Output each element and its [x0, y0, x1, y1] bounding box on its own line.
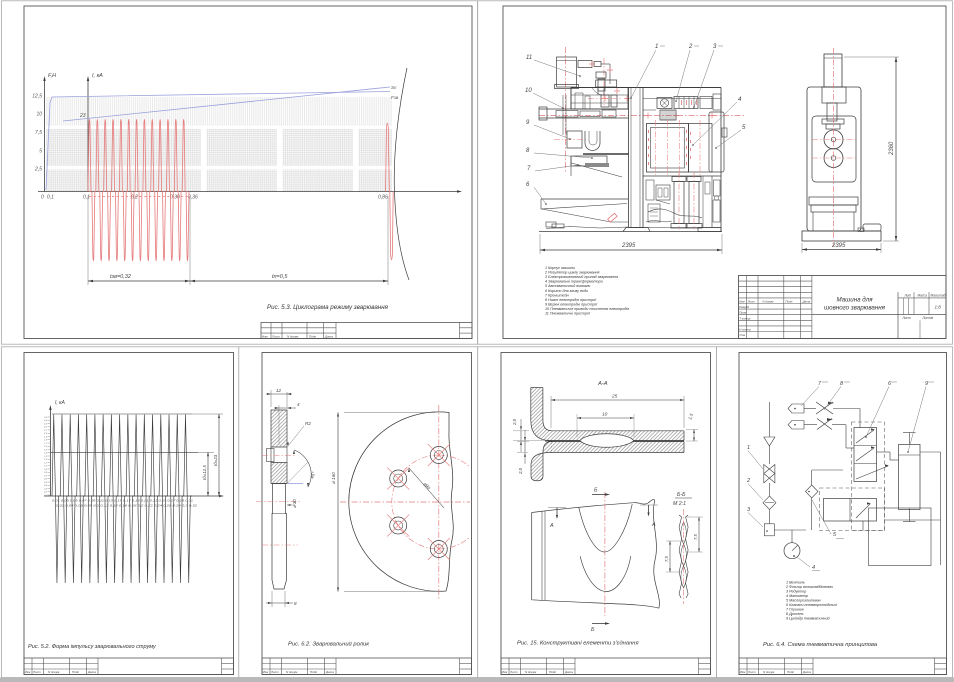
- svg-text:2 Фільтр вологовідділювач: 2 Фільтр вологовідділювач: [785, 585, 833, 589]
- svg-text:Iд=23: Iд=23: [213, 454, 218, 466]
- svg-text:0: 0: [41, 195, 44, 201]
- svg-text:Fзв: Fзв: [391, 95, 399, 100]
- svg-text:I, кА: I, кА: [92, 73, 103, 79]
- svg-text:R2: R2: [305, 421, 311, 426]
- svg-text:Лит: Лит: [904, 294, 912, 298]
- svg-text:tзв=0,32: tзв=0,32: [110, 274, 131, 280]
- svg-text:А-А: А-А: [597, 381, 608, 387]
- svg-text:1 Вентиль: 1 Вентиль: [786, 581, 805, 585]
- svg-text:tп=0,5: tп=0,5: [272, 274, 288, 280]
- svg-text:⌀ 160: ⌀ 160: [331, 472, 336, 484]
- svg-text:Подп: Подп: [549, 670, 557, 674]
- svg-text:Iд=12,5: Iд=12,5: [202, 465, 207, 480]
- svg-text:Разраб: Разраб: [739, 305, 749, 309]
- svg-text:Пров: Пров: [739, 311, 746, 315]
- svg-text:Дата: Дата: [564, 670, 573, 674]
- svg-text:Рис. 6.4. Схема пневматична пр: Рис. 6.4. Схема пневматична принципова: [763, 642, 878, 648]
- svg-text:4: 4: [297, 402, 300, 407]
- svg-text:3 Електроживлюючий прилад зва: 3 Електроживлюючий прилад зварювання: [545, 275, 618, 279]
- svg-text:8: 8: [294, 601, 297, 606]
- svg-text:Подп: Подп: [787, 670, 795, 674]
- svg-text:Изм: Изм: [263, 670, 269, 674]
- svg-text:Рис. 5.2. Форма імпульсу зварю: Рис. 5.2. Форма імпульсу зварювального с…: [28, 644, 157, 650]
- svg-text:Лист: Лист: [270, 670, 279, 674]
- svg-text:0,2: 0,2: [131, 195, 138, 201]
- svg-text:0,1: 0,1: [83, 195, 90, 201]
- svg-text:Листів: Листів: [922, 316, 934, 320]
- svg-text:7,5: 7,5: [35, 130, 42, 136]
- svg-text:Масштаб: Масштаб: [931, 294, 946, 298]
- svg-text:12: 12: [276, 388, 282, 393]
- svg-text:0,86: 0,86: [378, 195, 388, 201]
- svg-text:А: А: [549, 523, 554, 529]
- svg-text:Рис. 6.2. Зварювальний ролик: Рис. 6.2. Зварювальний ролик: [288, 641, 369, 648]
- svg-text:Рис. 5.3. Циклограма режиму зв: Рис. 5.3. Циклограма режиму зварювання: [267, 304, 389, 311]
- svg-text:Изм: Изм: [502, 670, 508, 674]
- svg-text:Sv: Sv: [391, 85, 397, 90]
- svg-text:2,0: 2,0: [512, 418, 517, 426]
- svg-text:2: 2: [746, 478, 750, 484]
- svg-text:0,01 0,03 0,05 0,07 0,09 0,11: 0,01 0,03 0,05 0,07 0,09 0,11 0,13 0,15 …: [52, 499, 194, 503]
- svg-text:5 Автоматичний вимикач: 5 Автоматичний вимикач: [545, 284, 590, 288]
- svg-text:10: 10: [602, 412, 608, 418]
- svg-text:I, кА: I, кА: [55, 400, 66, 406]
- svg-text:Подп: Подп: [310, 670, 318, 674]
- svg-text:Дата: Дата: [802, 670, 811, 674]
- svg-text:5 Маслорозпилювач: 5 Маслорозпилювач: [786, 599, 821, 603]
- svg-text:1 Корпус машини: 1 Корпус машини: [545, 266, 575, 270]
- svg-text:Б-Б: Б-Б: [677, 492, 686, 498]
- svg-text:Машина для: Машина для: [836, 297, 873, 304]
- svg-text:Подп: Подп: [309, 335, 317, 339]
- svg-text:9: 9: [925, 381, 928, 387]
- svg-text:7 Кронштейн: 7 Кронштейн: [545, 293, 569, 297]
- svg-text:23: 23: [79, 113, 86, 119]
- svg-text:6 Корито для зливу води: 6 Корито для зливу води: [545, 289, 588, 293]
- svg-text:⌀ 30: ⌀ 30: [292, 499, 297, 508]
- svg-text:N докум: N докум: [48, 670, 59, 674]
- svg-text:F,H: F,H: [48, 73, 56, 79]
- svg-text:2: 2: [688, 44, 693, 50]
- svg-text:7,5: 7,5: [693, 534, 698, 540]
- svg-text:7,5: 7,5: [664, 556, 669, 562]
- svg-text:Изм: Изм: [739, 300, 744, 304]
- svg-text:Изм: Изм: [740, 670, 746, 674]
- svg-text:0,02 0,04 0,06 0,08 0,1 0,12 0: 0,02 0,04 0,06 0,08 0,1 0,12 0,14 0,16 0…: [56, 504, 198, 508]
- svg-text:Подп: Подп: [786, 300, 793, 304]
- svg-text:Т контр: Т контр: [739, 316, 751, 320]
- svg-text:6 Клапани пневморозподільні: 6 Клапани пневморозподільні: [786, 603, 837, 607]
- svg-text:2,5: 2,5: [34, 167, 42, 173]
- svg-text:Утв: Утв: [739, 333, 745, 337]
- svg-text:3 Редуктор: 3 Редуктор: [786, 590, 806, 594]
- svg-text:4 Манометр: 4 Манометр: [786, 594, 808, 598]
- svg-text:Лист: Лист: [902, 316, 912, 320]
- svg-text:Изм: Изм: [262, 335, 268, 339]
- svg-text:2360: 2360: [889, 141, 895, 156]
- svg-text:11 Пневматичні пристрої: 11 Пневматичні пристрої: [545, 312, 591, 316]
- svg-text:Масса: Масса: [918, 294, 928, 298]
- svg-text:2395: 2395: [831, 243, 846, 249]
- svg-text:4 Зварювальні трансформатори: 4 Зварювальні трансформатори: [545, 280, 603, 284]
- svg-text:0,36: 0,36: [188, 195, 198, 201]
- svg-text:N докум: N докум: [286, 670, 297, 674]
- svg-text:Дата: Дата: [325, 670, 334, 674]
- svg-text:10: 10: [525, 88, 532, 94]
- svg-text:Лист: Лист: [271, 335, 280, 339]
- svg-text:8 Дросель: 8 Дросель: [786, 612, 804, 616]
- svg-text:7 Глушник: 7 Глушник: [786, 608, 804, 612]
- svg-text:N докум: N докум: [763, 670, 774, 674]
- svg-text:10: 10: [36, 112, 42, 118]
- svg-text:Лист: Лист: [747, 300, 756, 304]
- svg-text:Дата: Дата: [324, 335, 333, 339]
- svg-text:Дата: Дата: [87, 670, 96, 674]
- svg-text:N докум: N докум: [525, 670, 536, 674]
- svg-text:9 Циліндр пневматичний: 9 Циліндр пневматичний: [786, 617, 830, 621]
- svg-text:Б: Б: [591, 627, 595, 633]
- svg-text:9 Верхні електродні пристрої: 9 Верхні електродні пристрої: [545, 302, 598, 306]
- svg-text:4: 4: [812, 565, 815, 571]
- svg-text:Изм: Изм: [25, 670, 31, 674]
- svg-text:8 Нижні електродні пристрої: 8 Нижні електродні пристрої: [545, 298, 597, 302]
- svg-text:N докум: N докум: [763, 300, 774, 304]
- svg-text:0,1: 0,1: [47, 195, 54, 201]
- svg-text:Дата: Дата: [802, 300, 811, 304]
- svg-text:N докум: N докум: [287, 335, 298, 339]
- svg-text:Лист: Лист: [32, 670, 41, 674]
- svg-text:Н контр: Н контр: [739, 328, 751, 332]
- svg-text:шовного зварювання: шовного зварювання: [824, 305, 886, 312]
- svg-text:12,5: 12,5: [32, 94, 42, 100]
- svg-text:2,0: 2,0: [518, 467, 523, 475]
- svg-text:1:8: 1:8: [935, 305, 942, 310]
- svg-text:1: 1: [747, 445, 750, 451]
- svg-text:Подп: Подп: [72, 670, 80, 674]
- svg-text:2395: 2395: [621, 243, 636, 249]
- svg-text:5: 5: [39, 149, 42, 155]
- svg-text:25: 25: [611, 394, 618, 400]
- svg-text:Б: Б: [594, 488, 598, 494]
- svg-text:2 Регулятор циклу зварювання: 2 Регулятор циклу зварювання: [544, 271, 600, 275]
- svg-text:Лист: Лист: [509, 670, 518, 674]
- svg-text:Рис. 15. Конструктивні елемент: Рис. 15. Конструктивні елементи з'єднанн…: [517, 641, 639, 647]
- svg-text:М 2:1: М 2:1: [673, 501, 686, 507]
- svg-text:Лист: Лист: [747, 670, 756, 674]
- svg-text:11: 11: [526, 55, 532, 61]
- svg-text:10 Пневматичні приводи стиснен: 10 Пневматичні приводи стиснення електро…: [545, 307, 629, 311]
- svg-text:1: 1: [655, 44, 658, 50]
- svg-text:А: А: [651, 522, 656, 528]
